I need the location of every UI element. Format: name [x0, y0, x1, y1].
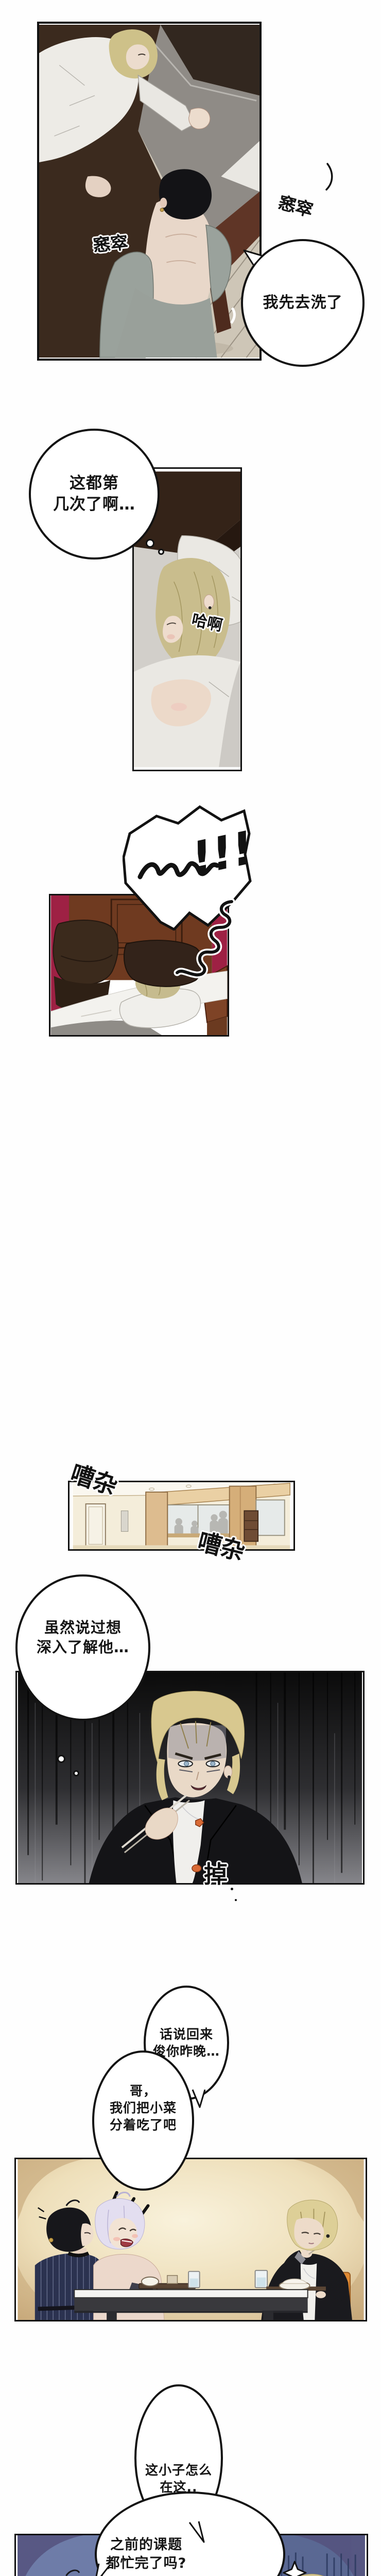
sofa-cushion — [54, 920, 118, 985]
bubble-text: 都忙完了吗? — [106, 2554, 187, 2573]
drop-trail-dot — [235, 1899, 237, 1901]
thought-dot — [158, 549, 164, 555]
bubble-lastnight-tail — [189, 2088, 208, 2109]
panel-dining-warm-art — [16, 2159, 366, 2320]
thought-dot — [73, 1770, 79, 1776]
bubble-why-tail — [186, 2520, 207, 2544]
window-right — [256, 1500, 284, 1535]
bubble-text: 哥， — [130, 2082, 157, 2099]
webtoon-page: 窸窣 窸窣 我先去洗了 这都第 几次了啊… — [0, 0, 381, 2576]
bubble-wash-tail — [242, 248, 263, 266]
panel-bedroom-art — [39, 24, 259, 359]
blue-eye — [184, 1761, 189, 1766]
motion-line — [322, 161, 338, 193]
bubble-text: 之前的课题 — [110, 2536, 182, 2554]
dispenser — [121, 1511, 128, 1531]
laughing-mouth — [121, 2239, 133, 2247]
bubble-text: 深入了解他… — [37, 1637, 129, 1657]
shake-squiggle — [154, 897, 243, 980]
sfx-rustle-2: 窸窣 — [92, 228, 129, 257]
blue-eye — [211, 1761, 215, 1766]
drop-trail-dot — [231, 1888, 233, 1890]
thought-bubble-deep: 虽然说过想 深入了解他… — [15, 1574, 150, 1721]
speech-bubble-share: 哥， 我们把小菜 分着吃了吧 — [92, 2050, 194, 2191]
bubble-text: 几次了啊… — [53, 494, 135, 515]
bubble-text: 我们把小菜 — [110, 2099, 177, 2116]
sfx-rustle-1: 窸窣 — [276, 189, 316, 222]
gold-earring — [160, 208, 164, 212]
thought-bubble-count: 这都第 几次了啊… — [29, 429, 160, 560]
bubble-text: 这都第 — [70, 473, 119, 494]
thought-dot — [57, 1755, 65, 1763]
thought-dot — [146, 539, 154, 548]
bubble-text: 话说回来 — [160, 2026, 213, 2043]
sfx-drop: 掉 — [204, 1856, 228, 1890]
falling-food — [192, 1865, 201, 1872]
panel-dining-warm — [14, 2158, 367, 2321]
bubble-text: 虽然说过想 — [44, 1618, 122, 1637]
bubble-homework-tail — [91, 2562, 113, 2576]
bubble-text: 这小子怎么 — [145, 2462, 212, 2479]
bubble-text: 我先去洗了 — [263, 293, 343, 313]
bubble-text: 分着吃了吧 — [110, 2116, 177, 2133]
pillar-left — [146, 1492, 167, 1549]
panel-bedroom — [37, 22, 262, 361]
